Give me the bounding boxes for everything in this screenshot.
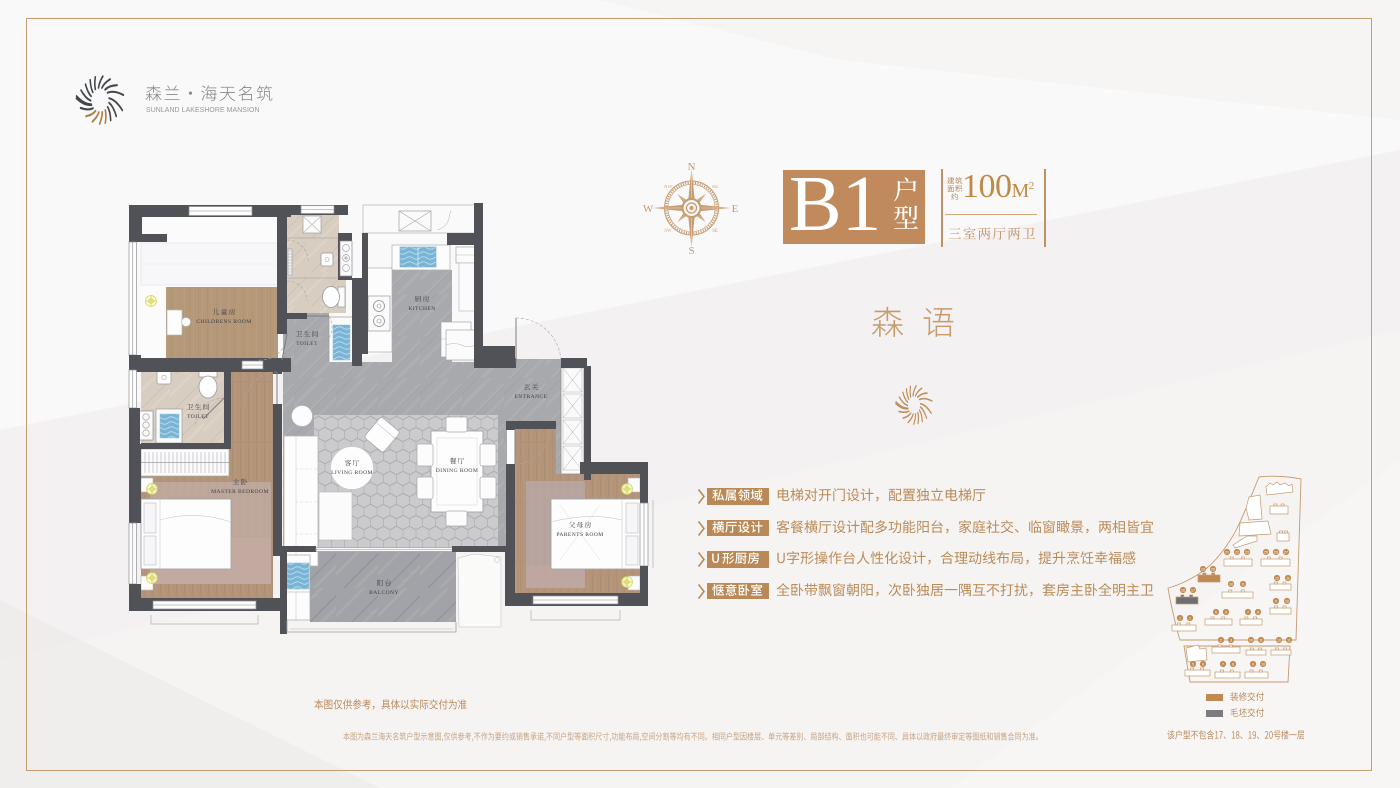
svg-text:DINING ROOM: DINING ROOM bbox=[436, 468, 478, 474]
svg-text:11: 11 bbox=[1287, 638, 1291, 642]
svg-text:LIVING ROOM: LIVING ROOM bbox=[331, 470, 373, 476]
svg-text:12: 12 bbox=[1275, 576, 1279, 580]
svg-text:8: 8 bbox=[1257, 610, 1259, 614]
svg-text:ENTRANCE: ENTRANCE bbox=[514, 394, 547, 400]
svg-text:3: 3 bbox=[1230, 638, 1232, 642]
svg-text:5: 5 bbox=[1192, 662, 1194, 666]
svg-text:6: 6 bbox=[1202, 662, 1204, 666]
svg-text:TOILET: TOILET bbox=[187, 414, 209, 420]
svg-text:PARENTS ROOM: PARENTS ROOM bbox=[556, 532, 603, 538]
svg-text:NW: NW bbox=[664, 185, 673, 190]
svg-text:TOILET: TOILET bbox=[296, 341, 318, 347]
svg-text:2: 2 bbox=[1189, 616, 1191, 620]
svg-text:10: 10 bbox=[1229, 582, 1233, 586]
svg-text:5: 5 bbox=[1215, 610, 1217, 614]
svg-text:10: 10 bbox=[1285, 599, 1289, 603]
svg-text:SW: SW bbox=[664, 229, 672, 234]
svg-text:MASTER BEDROOM: MASTER BEDROOM bbox=[211, 489, 269, 495]
svg-text:10: 10 bbox=[1261, 662, 1265, 666]
svg-text:20: 20 bbox=[1211, 567, 1215, 571]
svg-text:KITCHEN: KITCHEN bbox=[408, 306, 435, 312]
svg-text:22: 22 bbox=[1235, 550, 1239, 554]
svg-text:SE: SE bbox=[712, 229, 718, 234]
svg-text:7: 7 bbox=[1222, 662, 1224, 666]
svg-text:S: S bbox=[688, 245, 694, 257]
svg-text:17: 17 bbox=[1191, 588, 1195, 592]
svg-text:16: 16 bbox=[1181, 588, 1185, 592]
svg-text:7: 7 bbox=[1247, 610, 1249, 614]
svg-text:27: 27 bbox=[1284, 550, 1288, 554]
svg-text:11: 11 bbox=[1259, 638, 1263, 642]
svg-text:10: 10 bbox=[1249, 638, 1253, 642]
svg-text:6: 6 bbox=[1225, 610, 1227, 614]
svg-text:NE: NE bbox=[712, 185, 719, 190]
svg-text:11: 11 bbox=[1286, 576, 1290, 580]
svg-text:CHILDRENS ROOM: CHILDRENS ROOM bbox=[196, 319, 251, 325]
svg-text:E: E bbox=[732, 203, 739, 215]
svg-text:12: 12 bbox=[1277, 638, 1281, 642]
svg-text:1: 1 bbox=[1179, 616, 1181, 620]
svg-text:N: N bbox=[688, 161, 696, 173]
svg-text:26: 26 bbox=[1274, 550, 1278, 554]
svg-text:BALCONY: BALCONY bbox=[369, 590, 399, 596]
svg-text:23: 23 bbox=[1245, 550, 1249, 554]
svg-text:19: 19 bbox=[1201, 567, 1205, 571]
svg-text:9: 9 bbox=[1275, 599, 1277, 603]
svg-text:21: 21 bbox=[1225, 550, 1229, 554]
svg-text:8: 8 bbox=[1232, 662, 1234, 666]
svg-text:11: 11 bbox=[1241, 582, 1245, 586]
svg-text:25: 25 bbox=[1264, 550, 1268, 554]
svg-text:2: 2 bbox=[1220, 638, 1222, 642]
svg-text:9: 9 bbox=[1252, 662, 1254, 666]
